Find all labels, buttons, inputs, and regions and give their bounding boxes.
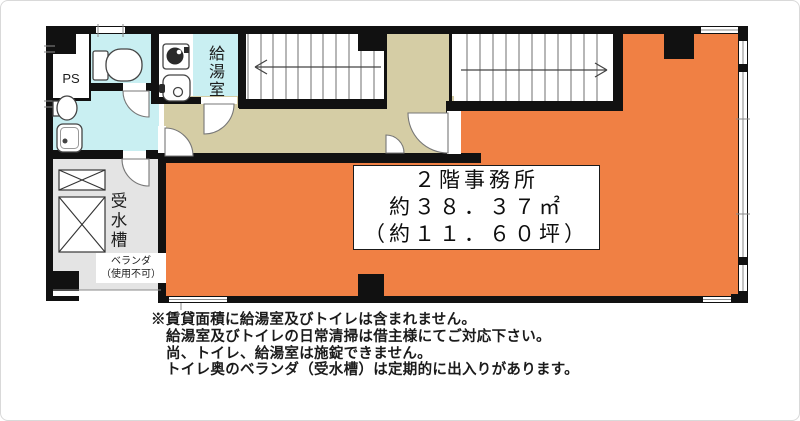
office-area-sqm: 約３８．３７㎡ xyxy=(389,194,564,221)
veranda-label-line2: （使用不可） xyxy=(96,268,166,281)
note-line-4: トイレ奥のベランダ（受水槽）は定期的に出入りがあります。 xyxy=(166,362,579,379)
toilet-icon xyxy=(93,49,142,81)
water-tank-large-icon xyxy=(59,197,105,252)
veranda-label-line1: ベランダ xyxy=(96,255,166,268)
office-area-tsubo: （約１１．６０坪） xyxy=(364,221,589,248)
pillar xyxy=(358,274,384,296)
water-tank-small-icon xyxy=(59,170,105,190)
balcony-corner-block xyxy=(46,271,79,301)
water-heater-icon xyxy=(159,75,190,101)
pillar xyxy=(358,28,384,51)
pillar xyxy=(664,34,694,59)
office-title: ２階事務所 xyxy=(414,167,539,194)
ps-label: PS xyxy=(55,63,87,93)
floor-plan-page: PS 給湯室 受水槽 ベランダ （使用不可） ２階事務所 約３８．３７㎡ （約１… xyxy=(0,0,800,421)
notes-block: ※賃貸面積に給湯室及びトイレは含まれません。 給湯室及びトイレの日常清掃は借主様… xyxy=(151,312,579,379)
stair-landing xyxy=(386,34,451,111)
sink-icon xyxy=(57,124,82,152)
stairs-right xyxy=(454,34,613,101)
note-line-1: ※賃貸面積に給湯室及びトイレは含まれません。 xyxy=(151,312,579,329)
kitchen-room-label: 給湯室 xyxy=(202,45,226,99)
office-info-box: ２階事務所 約３８．３７㎡ （約１１．６０坪） xyxy=(353,165,600,250)
water-tank-label: 受水槽 xyxy=(105,192,129,251)
note-line-3: 尚、トイレ、給湯室は施錠できません。 xyxy=(166,346,579,363)
stove-icon xyxy=(163,44,189,69)
veranda-label: ベランダ （使用不可） xyxy=(96,253,166,283)
note-line-2: 給湯室及びトイレの日常清掃は借主様にてご対応下さい。 xyxy=(166,329,579,346)
